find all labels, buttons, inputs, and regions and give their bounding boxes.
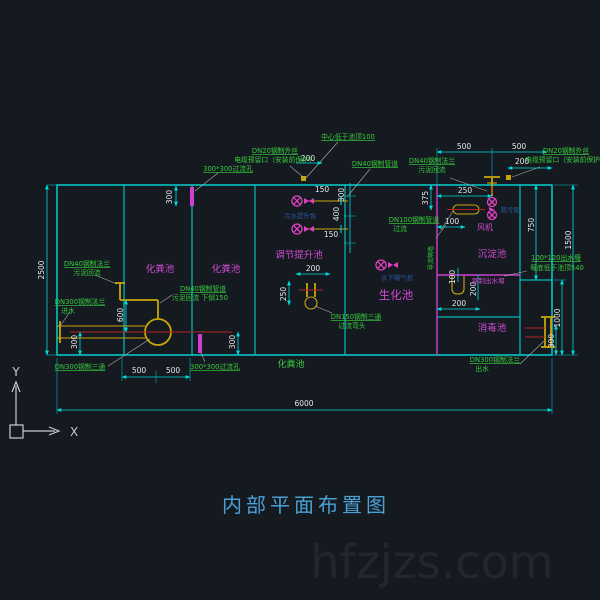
aerator-symbol [376,260,398,270]
dim-200-reg: 200 [306,264,321,273]
label-dn100-pipe-1: DN100钢制管道 [389,215,440,224]
label-aerator: 水下曝气机 [381,273,414,282]
dim-300-bl: 300 [70,335,79,350]
dim-600: 600 [116,308,125,323]
label-lift-pump: 污水提升泵 [284,211,317,220]
label-overflow-top: 300*300过流孔 [203,164,253,173]
dim-250-reg: 250 [279,287,288,302]
lift-pump-symbol-1 [292,196,314,206]
dim-300-rot: 300 [337,188,346,203]
label-dn20-right-1: DN20钢制外丝 [543,146,589,155]
label-dn300-tee: DN300钢制三通 [55,362,106,371]
regulation-pipework [299,283,323,309]
label-dn40-pipe-left-2: 污泥回流 下倒150 [172,293,228,302]
fan-pump-stack [488,198,497,220]
label-dn20-right-2: 电缆预留口（安装前保护） [525,155,600,164]
dim-1000: 1000 [553,308,562,327]
label-fan: 风机 [477,222,493,232]
dim-150-a: 150 [315,185,330,194]
label-septic-1: 化粪池 [146,263,175,275]
label-overflow-bottom: 300*300过流孔 [190,362,240,371]
page-title: 内部平面布置图 [222,493,390,517]
lift-pump-symbol-2 [292,224,314,234]
ucs-axis-icon: Y X [10,365,78,439]
fan-riser-pipework [484,177,500,196]
cable-hole-marker-right [506,175,511,180]
label-dn300-flange-out-1: DN300钢制法兰 [470,355,521,364]
label-biochemical: 生化池 [379,288,414,302]
label-septic-2: 化粪池 [212,263,241,275]
watermark: hfzjzs.com [310,535,553,589]
label-septic-bottom: 化粪池 [277,358,304,370]
dn150-tee-circle [305,297,317,309]
dim-300-slot-top: 300 [165,190,174,205]
dim-500-a: 500 [457,142,472,151]
label-disinfection: 消毒池 [478,322,507,334]
label-weir-2: 堰底低于池顶540 [530,263,584,272]
dim-375: 375 [421,191,430,206]
dim-100-weir: 100 [448,270,457,285]
label-guide-wall: 导流隔墙 [427,246,435,270]
cad-drawing: 2500 6000 1500 1000 750 300 500 500 200 … [0,0,600,600]
label-sedimentation: 沉淀池 [478,248,507,260]
overflow-slots [192,187,200,353]
axis-y-label: Y [11,365,20,379]
dim-250-tr: 250 [458,186,473,195]
label-dn40-pipe-top: DN40钢制管道 [352,159,398,168]
dim-300-br: 300 [228,335,237,350]
label-regulation-lift: 调节提升池 [275,249,323,261]
label-center-below-top: 中心低于池顶100 [321,132,375,141]
dim-400: 400 [332,207,341,222]
label-dn300-flange-out-2: 出水 [475,364,489,373]
dim-500-bl2: 500 [166,366,181,375]
label-dn20-left-2: 电缆预留口（安装前保护） [234,155,316,164]
dim-750: 750 [527,218,536,233]
dim-500-b: 500 [512,142,527,151]
label-weir-1: 100*120出水堰 [531,253,581,262]
label-outlet-weir: 钢制出水堰 [472,276,505,285]
dim-200-weir-h: 200 [452,299,467,308]
label-dn40-pipe-left-1: DN40钢制管道 [180,284,226,293]
dim-6000: 6000 [294,399,313,408]
label-dn20-left-1: DN20钢制外丝 [252,146,298,155]
dim-500-bl1: 500 [132,366,147,375]
label-dn40-flange-left-1: DN40钢制法兰 [64,259,110,268]
dn100-pump-body [447,205,485,214]
dim-2500: 2500 [37,260,46,279]
label-dn40-flange-left-2: 污泥回流 [73,268,100,277]
dim-300-out: 300 [547,334,556,349]
dim-1500: 1500 [564,230,573,249]
label-dn40-flange-top-2: 污泥回流 [418,165,445,174]
label-dn100-pipe-2: 过流 [393,224,407,233]
axis-x-label: X [70,425,78,439]
dim-100-tr: 100 [445,217,460,226]
label-dn40-flange-top-1: DN40钢制法兰 [409,156,455,165]
label-dn300-flange-in-2: 进水 [61,306,75,315]
label-dn150-tee-1: DN150钢制三通 [331,312,382,321]
dim-150-b: 150 [324,230,339,239]
label-dn300-flange-in-1: DN300钢制法兰 [55,297,106,306]
label-submersible-pump: 潜污泵 [500,205,520,214]
label-dn150-tee-2: 过流弯头 [338,321,365,330]
